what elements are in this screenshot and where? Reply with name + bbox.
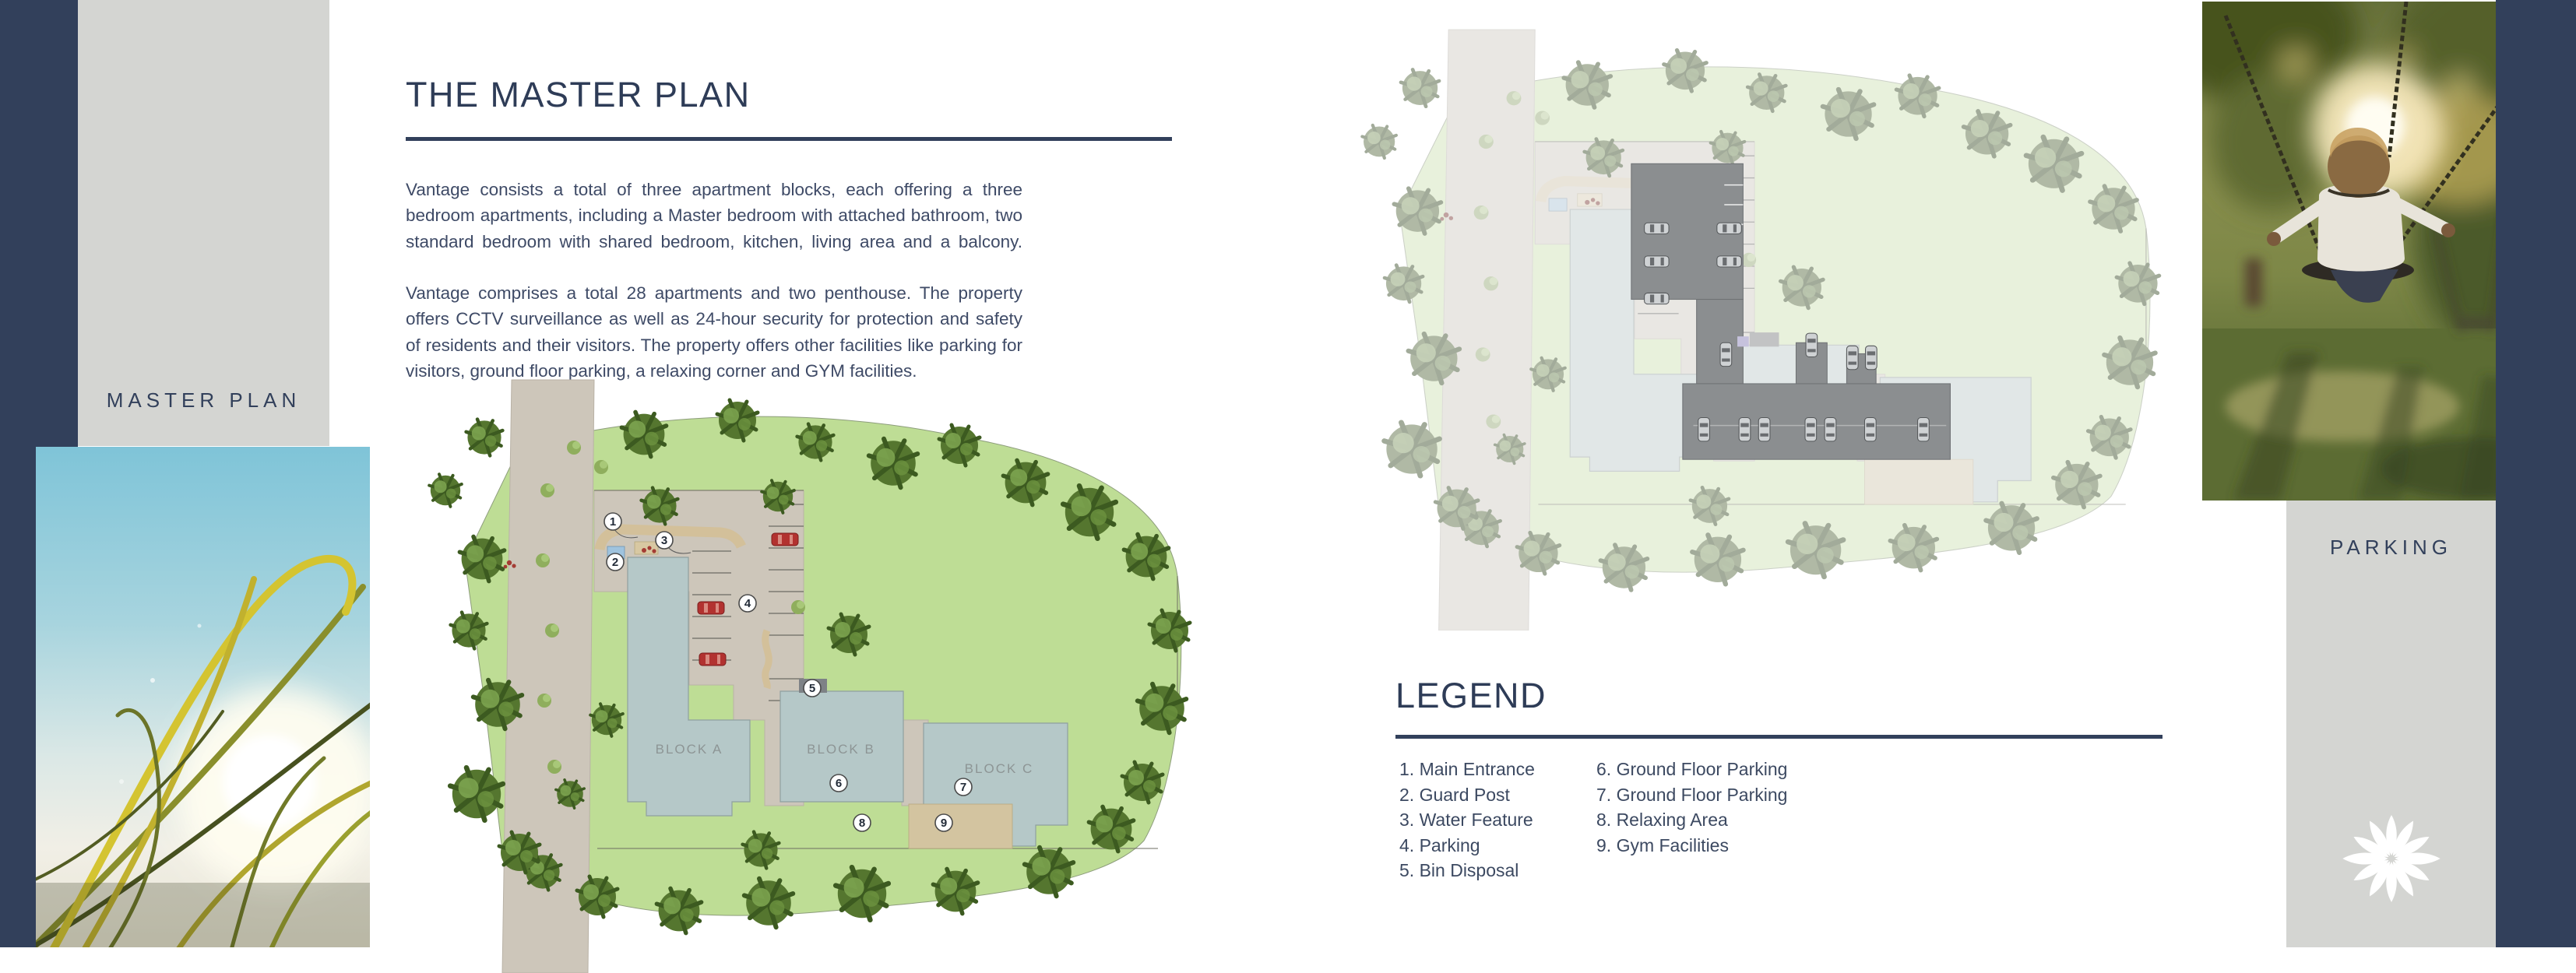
block-a-label: BLOCK A [656,742,723,757]
legend-divider [1395,735,2163,739]
flower-logo-icon [2341,808,2442,909]
legend-column-2: 6. Ground Floor Parking 7. Ground Floor … [1596,757,1787,883]
left-gray-panel: MASTER PLAN [78,0,329,446]
block-c-label: BLOCK C [965,761,1034,776]
marker-2: 2 [612,556,618,569]
right-gray-panel: PARKING [2286,501,2496,947]
legend-item: 4. Parking [1399,833,1596,859]
page-title: THE MASTER PLAN [406,75,751,115]
grass-photo-art [36,447,370,947]
legend-item: 2. Guard Post [1399,782,1596,808]
swing-photo-art [2202,2,2534,501]
legend-item: 8. Relaxing Area [1596,807,1787,833]
title-divider [406,137,1172,141]
child-swing-photo [2202,2,2534,501]
marker-5: 5 [809,682,815,695]
legend-column-1: 1. Main Entrance 2. Guard Post 3. Water … [1399,757,1596,883]
marker-9: 9 [941,817,947,830]
master-plan-site-map: BLOCK A BLOCK B BLOCK C 1 2 3 4 5 6 7 8 … [410,374,1228,973]
marker-4: 4 [744,597,751,610]
marker-8: 8 [859,817,865,830]
ground-floor-parking-site-map [1343,23,2199,631]
legend-item: 3. Water Feature [1399,807,1596,833]
marker-6: 6 [836,777,842,790]
legend-title: LEGEND [1395,676,1547,716]
legend-item: 5. Bin Disposal [1399,858,1596,883]
legend-item: 6. Ground Floor Parking [1596,757,1787,782]
grass-sunrise-photo [36,447,370,947]
right-navy-strip [2496,0,2576,947]
block-b-label: BLOCK B [807,742,875,757]
legend-item: 9. Gym Facilities [1596,833,1787,859]
parking-label: PARKING [2286,536,2496,560]
marker-3: 3 [661,534,667,547]
legend-list: 1. Main Entrance 2. Guard Post 3. Water … [1399,757,1787,883]
intro-paragraph-2: Vantage comprises a total 28 apartments … [406,280,1022,385]
legend-item: 1. Main Entrance [1399,757,1596,782]
intro-paragraph-1: Vantage consists a total of three apartm… [406,177,1022,255]
master-plan-label: MASTER PLAN [78,388,329,413]
marker-7: 7 [960,781,966,794]
legend-item: 7. Ground Floor Parking [1596,782,1787,808]
marker-1: 1 [610,515,616,529]
